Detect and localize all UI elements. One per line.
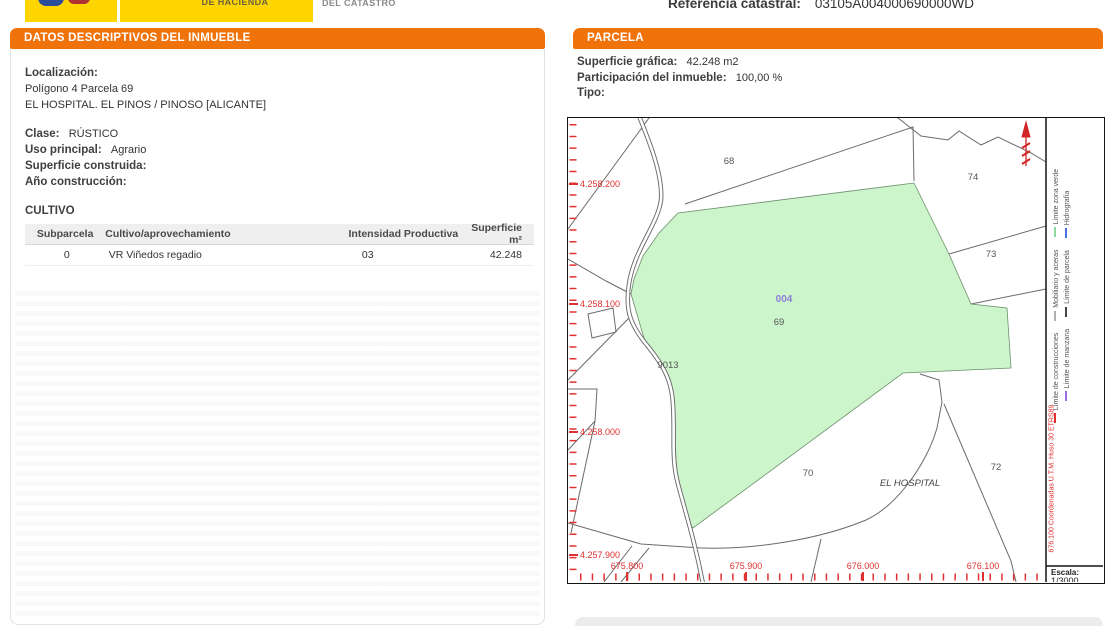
clase-value: RÚSTICO [69,128,119,140]
clase-label: Clase: [25,128,60,140]
cadastral-report-page: DE HACIENDA DEL CATASTRO Referencia cata… [0,0,1110,626]
superficie-construida-row: Superficie construida: [25,158,544,174]
legend-label: Límite de manzana [1064,329,1071,389]
ministry-header-band: DE HACIENDA [25,0,313,22]
property-details: Localización: Polígono 4 Parcela 69 EL H… [11,49,544,266]
y-axis-label: 4.258.000 [580,427,620,437]
map-drawing: 4.258.200 4.258.100 4.258.000 4.257.900 … [568,118,1103,582]
parcel-label-68: 68 [724,156,735,167]
highlighted-parcel-polygon [631,183,1011,528]
legend-line-manzana-icon [1065,391,1067,401]
parcela-fields: Superficie gráfica: 42.248 m2 Participac… [577,55,782,102]
legend-label: Mobiliario y aceras [1053,249,1060,307]
parcel-label-69: 69 [774,317,785,328]
legend-label: Hidrografía [1064,191,1071,226]
parcel-label-70: 70 [803,468,814,479]
section-title: DATOS DESCRIPTIVOS DEL INMUEBLE [24,32,251,44]
legend-label: Límite de parcela [1064,250,1071,304]
cultivo-table: Subparcela Cultivo/aprovechamiento Inten… [25,224,534,266]
x-axis-label: 675.800 [611,561,644,571]
section-header-parcela: PARCELA [573,28,1103,49]
col-cultivo: Cultivo/aprovechamiento [105,228,336,240]
legend-line-zona-verde-icon [1054,227,1056,237]
header-divider [117,0,120,22]
parcela-title: PARCELA [587,32,644,44]
cell-intensidad: 03 [350,249,490,261]
parcel-label-9013: 9013 [657,360,678,371]
localizacion-line1: Polígono 4 Parcela 69 [25,81,544,97]
directorate-label: DEL CATASTRO [322,0,396,8]
cadastral-reference-label: Referencia catastral: [668,0,801,11]
ano-construccion-label: Año construcción: [25,176,127,188]
datos-descriptivos-panel: Localización: Polígono 4 Parcela 69 EL H… [10,49,545,625]
legend-line-mobiliario-icon [1054,311,1056,321]
x-axis-label: 675.900 [730,561,763,571]
localizacion-label: Localización: [25,65,544,81]
parcel-label-72: 72 [991,462,1002,473]
y-axis-label: 4.258.200 [580,179,620,189]
logo-shape-red [68,0,90,4]
legend-label: Límite zona verde [1053,169,1060,225]
x-axis-label: 676.100 [967,561,1000,571]
ministry-logo [38,0,98,8]
uso-row: Uso principal: Agrario [25,142,544,158]
cell-cultivo: VR Viñedos regadio [109,249,350,261]
scale-box: Escala: 1/3000 [1051,568,1079,582]
y-axis-label: 4.258.100 [580,299,620,309]
localizacion-line2: EL HOSPITAL. EL PINOS / PINOSO [ALICANTE… [25,97,544,113]
col-superficie: Superficie m² [471,222,534,246]
table-row: 0 VR Viñedos regadio 03 42.248 [25,245,534,266]
ano-construccion-row: Año construcción: [25,174,544,190]
superficie-grafica-label: Superficie gráfica: [577,56,677,68]
empty-table-rows [15,286,540,621]
uso-value: Agrario [111,144,146,156]
superficie-construida-label: Superficie construida: [25,160,146,172]
participacion-row: Participación del inmueble: 100,00 % [577,71,782,87]
col-intensidad: Intensidad Productiva [337,228,472,240]
next-section-bar [575,617,1103,626]
section-header-datos-descriptivos: DATOS DESCRIPTIVOS DEL INMUEBLE [10,28,545,49]
subparcel-code-004: 004 [776,294,793,305]
cadastral-reference-value: 03105A004000690000WD [815,0,974,11]
parcel-label-74: 74 [968,172,979,183]
scale-value: 1/3000 [1051,576,1079,582]
cultivo-table-header: Subparcela Cultivo/aprovechamiento Inten… [25,224,534,245]
parcel-label-73: 73 [986,249,997,260]
col-subparcela: Subparcela [25,228,105,240]
north-arrow-icon [1022,122,1030,166]
utm-coordinates-note: 676.100 Coordenadas U.T.M. Huso 30 ETRS8… [1049,393,1060,565]
cell-superficie: 42.248 [490,249,534,261]
superficie-grafica-row: Superficie gráfica: 42.248 m2 [577,55,782,71]
participacion-label: Participación del inmueble: [577,72,727,84]
cadastral-map: 4.258.200 4.258.100 4.258.000 4.257.900 … [567,117,1105,584]
legend-row-2: Límite de manzana Límite de parcela Hidr… [1062,151,1073,451]
cultivo-title: CULTIVO [25,203,544,219]
cell-subparcela: 0 [25,249,109,261]
tipo-row: Tipo: [577,86,782,102]
legend-line-hidrografia-icon [1065,228,1067,238]
superficie-grafica-value: 42.248 m2 [687,56,739,68]
logo-shape-blue [38,0,64,6]
tipo-label: Tipo: [577,87,605,99]
cadastral-reference: Referencia catastral:03105A004000690000W… [668,0,974,11]
ministry-label: DE HACIENDA [160,0,310,7]
participacion-value: 100,00 % [736,72,782,84]
legend-line-parcela-icon [1065,307,1067,317]
y-axis-label: 4.257.900 [580,550,620,560]
place-label-el-hospital: EL HOSPITAL [880,478,940,489]
uso-label: Uso principal: [25,144,102,156]
x-axis-label: 676.000 [847,561,880,571]
clase-row: Clase: RÚSTICO [25,126,544,142]
